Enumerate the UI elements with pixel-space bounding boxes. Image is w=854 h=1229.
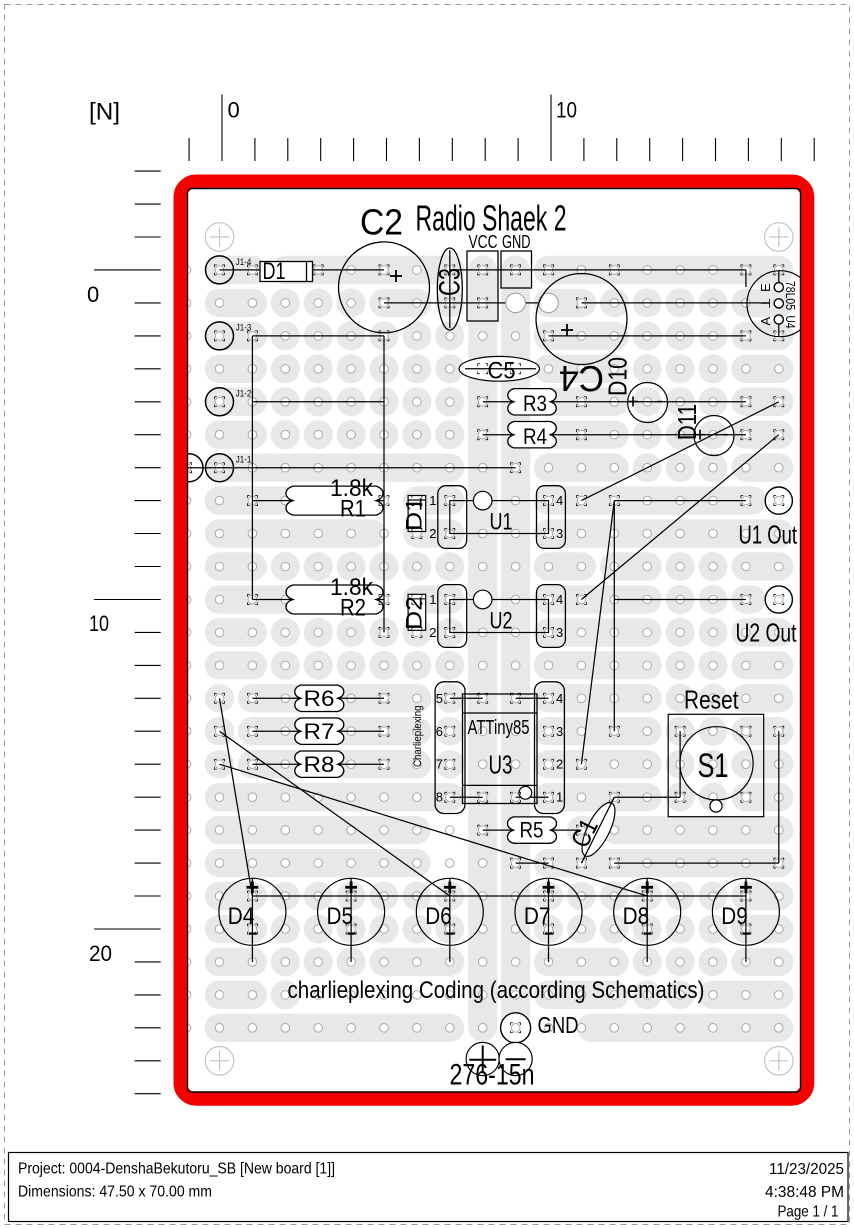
svg-text:4: 4 <box>556 493 563 508</box>
svg-text:Project: 0004-DenshaBekutoru_S: Project: 0004-DenshaBekutoru_SB [New boa… <box>18 1161 335 1178</box>
svg-text:A: A <box>758 317 773 326</box>
svg-text:charlieplexing Coding (accordi: charlieplexing Coding (according Schemat… <box>288 977 705 1004</box>
svg-text:D11: D11 <box>672 404 702 440</box>
svg-text:U3: U3 <box>489 750 513 780</box>
svg-text:R8: R8 <box>304 752 335 777</box>
svg-text:7: 7 <box>436 757 443 772</box>
svg-text:4: 4 <box>556 691 563 706</box>
svg-text:J1-1: J1-1 <box>236 455 252 465</box>
svg-text:S1: S1 <box>698 747 729 785</box>
svg-text:R2: R2 <box>340 595 366 622</box>
svg-text:C4: C4 <box>559 358 604 399</box>
svg-text:R1: R1 <box>340 496 366 523</box>
svg-text:D1: D1 <box>402 497 427 531</box>
svg-text:1: 1 <box>429 493 436 508</box>
svg-text:D10: D10 <box>603 357 633 396</box>
svg-text:[N]: [N] <box>89 99 120 126</box>
svg-text:D2: D2 <box>402 596 427 630</box>
svg-text:⊥: ⊥ <box>758 298 773 309</box>
svg-text:R3: R3 <box>523 391 547 416</box>
svg-text:2: 2 <box>429 625 436 640</box>
svg-text:GND: GND <box>502 232 531 252</box>
svg-text:0: 0 <box>87 282 99 307</box>
svg-text:U1: U1 <box>490 509 513 536</box>
svg-text:10: 10 <box>89 611 109 636</box>
svg-text:C5: C5 <box>488 358 516 385</box>
svg-text:8: 8 <box>436 790 443 805</box>
svg-text:D4: D4 <box>228 903 255 930</box>
svg-text:4:38:48 PM: 4:38:48 PM <box>765 1184 844 1201</box>
svg-text:2: 2 <box>556 757 563 772</box>
svg-text:5: 5 <box>436 691 443 706</box>
svg-text:R6: R6 <box>304 686 335 711</box>
svg-text:C2: C2 <box>360 202 403 243</box>
svg-text:D1: D1 <box>263 258 286 285</box>
svg-text:276-15n: 276-15n <box>450 1059 535 1092</box>
svg-text:11/23/2025: 11/23/2025 <box>769 1161 844 1178</box>
svg-text:U4: U4 <box>783 316 798 329</box>
svg-text:2: 2 <box>429 526 436 541</box>
svg-text:3: 3 <box>556 724 563 739</box>
svg-text:VCC: VCC <box>469 232 498 252</box>
svg-text:20: 20 <box>89 941 112 966</box>
svg-text:U1 Out: U1 Out <box>739 520 798 550</box>
svg-text:U2: U2 <box>490 608 513 635</box>
svg-text:D8: D8 <box>623 903 650 930</box>
svg-text:1: 1 <box>556 790 563 805</box>
svg-text:10: 10 <box>556 98 577 123</box>
svg-text:J1-2: J1-2 <box>236 389 252 399</box>
svg-text:Page 1 / 1: Page 1 / 1 <box>778 1204 839 1221</box>
svg-text:D6: D6 <box>425 903 452 930</box>
svg-text:Reset: Reset <box>684 685 739 715</box>
svg-text:6: 6 <box>436 724 443 739</box>
svg-text:3: 3 <box>556 526 563 541</box>
svg-text:R4: R4 <box>523 424 547 449</box>
svg-text:4: 4 <box>556 592 563 607</box>
svg-text:Dimensions: 47.50 x 70.00 mm: Dimensions: 47.50 x 70.00 mm <box>18 1184 212 1201</box>
svg-text:J1-4: J1-4 <box>236 257 252 267</box>
svg-text:R5: R5 <box>520 818 544 843</box>
svg-text:U2 Out: U2 Out <box>736 618 798 648</box>
svg-text:ATTiny85: ATTiny85 <box>468 717 530 739</box>
svg-text:R7: R7 <box>304 719 335 744</box>
svg-text:E: E <box>758 283 773 292</box>
svg-text:D5: D5 <box>327 903 354 930</box>
svg-text:C3: C3 <box>434 268 467 296</box>
svg-text:GND: GND <box>538 1012 579 1038</box>
svg-text:0: 0 <box>228 98 240 123</box>
svg-text:D7: D7 <box>524 903 551 930</box>
svg-text:Charlieplexing: Charlieplexing <box>412 706 424 768</box>
svg-text:D9: D9 <box>721 903 748 930</box>
svg-text:78L05: 78L05 <box>783 281 798 310</box>
svg-text:1: 1 <box>429 592 436 607</box>
svg-text:3: 3 <box>556 625 563 640</box>
